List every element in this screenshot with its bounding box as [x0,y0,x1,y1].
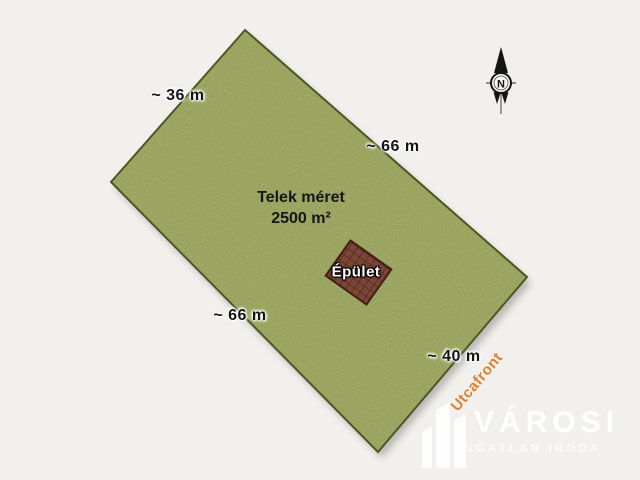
dimension-label-bottom-right: ~ 40 m [427,349,480,365]
compass: N [486,47,516,114]
plot-diagram-canvas: N ~ 36 m ~ 66 m ~ 66 m ~ 40 m Telek mére… [0,0,640,480]
compass-north-needle [494,47,508,73]
parcel-size-title: Telek méret [257,187,345,208]
parcel-size-area: 2500 m² [257,208,345,229]
building-label: Épület [332,265,381,280]
parcel-size-caption: Telek méret 2500 m² [257,187,345,229]
brand-icon-right-tower [454,414,466,468]
brand-subtitle: INGATLAN IRODA [458,444,602,456]
dimension-label-top-right: ~ 66 m [366,139,419,155]
brand-icon-main-tower [436,402,450,468]
compass-north-label: N [497,79,505,91]
brand-name: VÁROSI [474,408,619,438]
brand-icon-left-tower [422,426,432,468]
dimension-label-top-left: ~ 36 m [151,88,204,104]
dimension-label-bottom-left: ~ 66 m [213,308,266,324]
